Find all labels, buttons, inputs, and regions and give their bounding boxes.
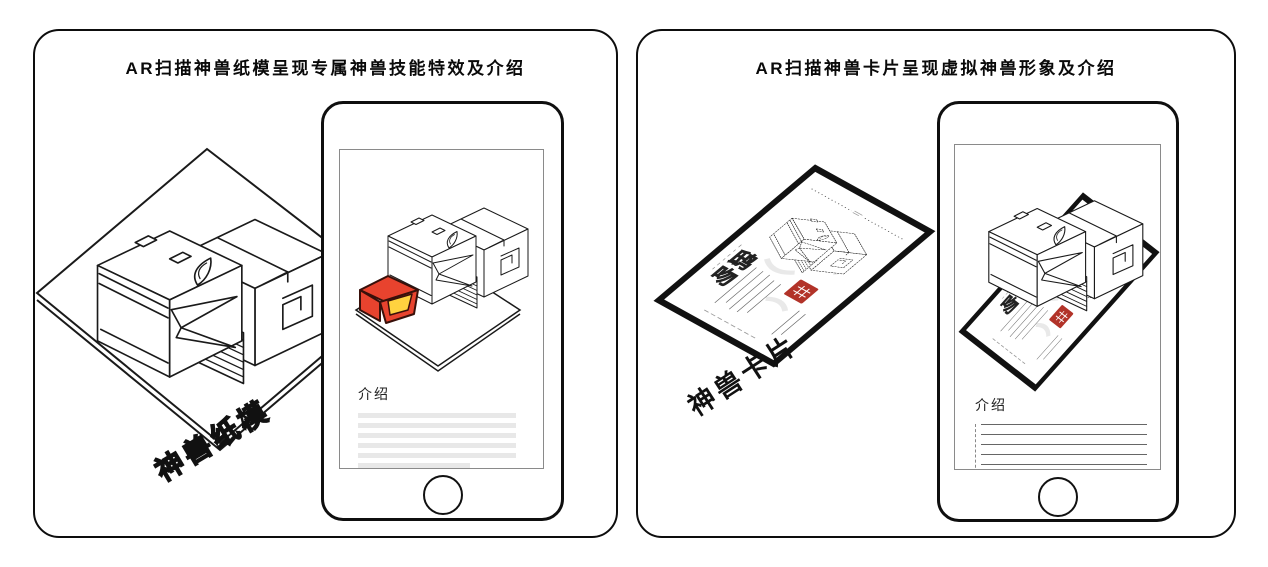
ar-view-card xyxy=(955,145,1160,393)
text-line xyxy=(981,424,1147,425)
text-bar xyxy=(358,453,516,458)
home-button xyxy=(1038,477,1078,517)
text-line xyxy=(981,454,1147,455)
ar-view-paper-model xyxy=(340,150,543,384)
text-bar xyxy=(358,413,516,418)
text-bar xyxy=(358,443,516,448)
left-phone-mockup: 介绍 xyxy=(321,101,564,521)
placeholder-text-lines xyxy=(975,424,1151,470)
panel-card: AR扫描神兽卡片呈现虚拟神兽形象及介绍 神兽卡片 介绍 xyxy=(636,29,1236,538)
text-line xyxy=(981,444,1147,445)
intro-heading: 介绍 xyxy=(358,384,528,404)
right-phone-mockup: 介绍 xyxy=(937,101,1179,522)
text-bar xyxy=(358,433,516,438)
intro-section: 介绍 xyxy=(358,384,528,469)
home-button xyxy=(423,475,463,515)
left-phone-screen: 介绍 xyxy=(339,149,544,469)
text-line xyxy=(981,434,1147,435)
intro-heading: 介绍 xyxy=(975,395,1151,415)
placeholder-text-bars xyxy=(358,413,528,468)
text-bar xyxy=(358,463,470,468)
intro-section: 介绍 xyxy=(975,395,1151,470)
panel-paper-model: AR扫描神兽纸模呈现专属神兽技能特效及介绍 神兽纸模 xyxy=(33,29,618,538)
text-bar xyxy=(358,423,516,428)
beast-card-illustration xyxy=(659,168,930,364)
text-line xyxy=(981,464,1147,465)
right-phone-screen: 介绍 xyxy=(954,144,1161,470)
card-label-wrap: 神兽卡片 xyxy=(678,347,928,467)
